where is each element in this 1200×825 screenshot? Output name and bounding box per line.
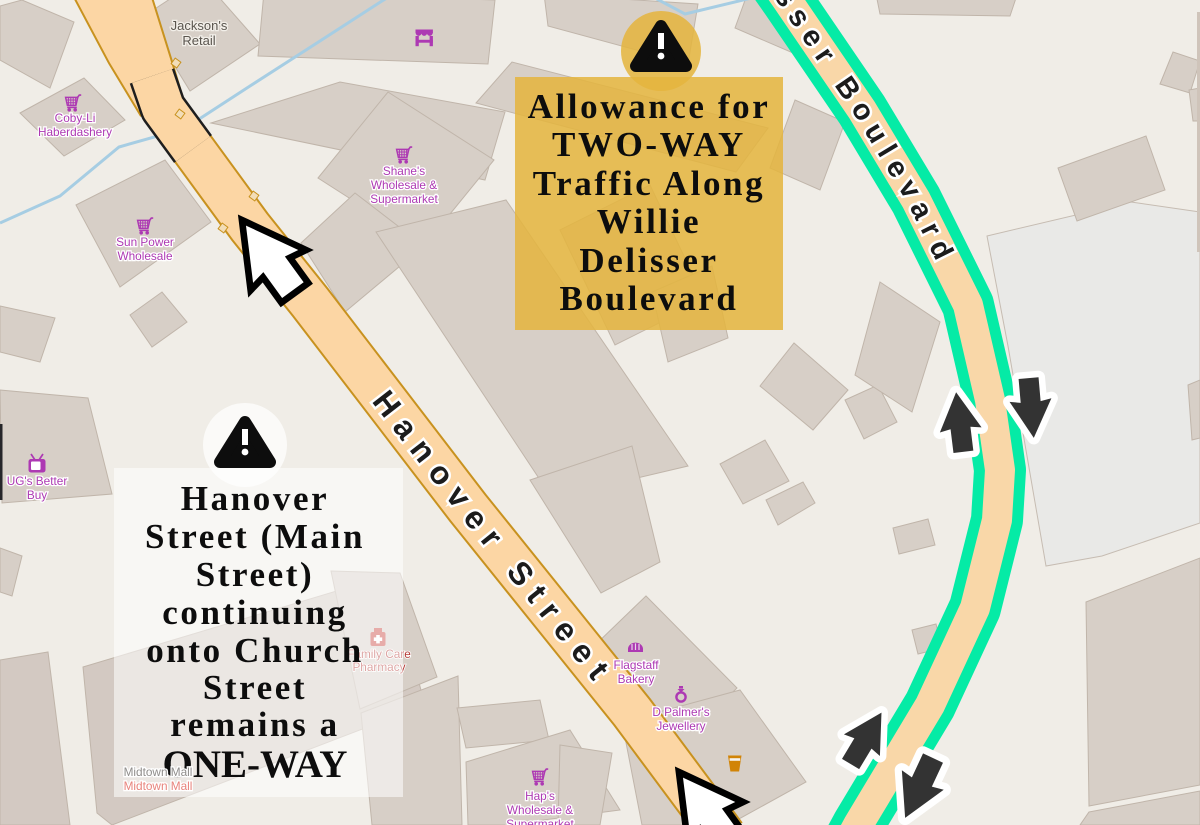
svg-text:Wholesale: Wholesale [117,249,173,263]
svg-text:Retail: Retail [182,33,215,48]
svg-text:Supermarket: Supermarket [506,817,574,825]
svg-text:Allowance for: Allowance for [528,87,771,126]
svg-text:Wholesale &: Wholesale & [507,803,573,817]
svg-text:TWO-WAY: TWO-WAY [552,125,746,164]
svg-text:Willie: Willie [597,202,701,241]
svg-text:Coby-Li: Coby-Li [55,111,96,125]
svg-text:D Palmer's: D Palmer's [652,705,709,719]
svg-text:Traffic Along: Traffic Along [533,164,765,203]
svg-text:Supermarket: Supermarket [370,192,438,206]
svg-text:continuing: continuing [162,593,348,632]
svg-text:Jackson's: Jackson's [171,18,228,33]
svg-text:Haberdashery: Haberdashery [38,125,112,139]
svg-text:Flagstaff: Flagstaff [613,658,659,672]
svg-text:Delisser: Delisser [579,241,718,280]
svg-text:Buy: Buy [27,488,47,502]
svg-text:Hap's: Hap's [525,789,555,803]
svg-text:onto Church: onto Church [146,631,364,670]
svg-text:remains a: remains a [170,705,340,744]
svg-text:Street: Street [203,668,307,707]
svg-text:Jewellery: Jewellery [656,719,705,733]
svg-text:Bakery: Bakery [618,672,655,686]
svg-text:Hanover: Hanover [181,479,329,518]
svg-text:Sun Power: Sun Power [116,235,174,249]
svg-text:Street (Main: Street (Main [145,517,365,556]
svg-text:Wholesale &: Wholesale & [371,178,437,192]
svg-text:Street): Street) [196,555,315,594]
svg-text:Midtown Mall: Midtown Mall [124,779,193,793]
svg-text:Shane's: Shane's [383,164,425,178]
svg-text:Midtown Mall: Midtown Mall [124,765,193,779]
svg-text:Boulevard: Boulevard [560,279,739,318]
svg-text:UG's Better: UG's Better [7,474,68,488]
